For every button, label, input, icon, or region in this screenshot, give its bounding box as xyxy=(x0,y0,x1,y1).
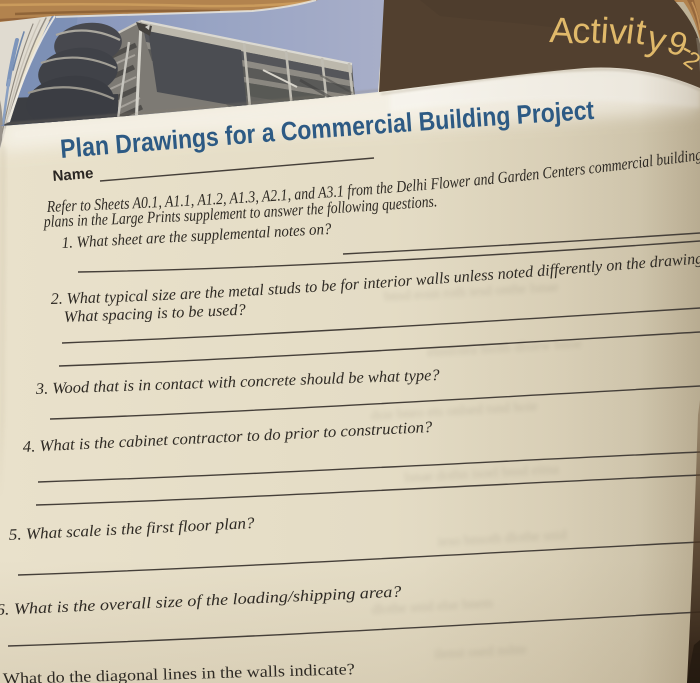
svg-text:Name: Name xyxy=(52,165,94,185)
svg-text:A: A xyxy=(549,9,575,51)
svg-text:c: c xyxy=(572,10,591,52)
